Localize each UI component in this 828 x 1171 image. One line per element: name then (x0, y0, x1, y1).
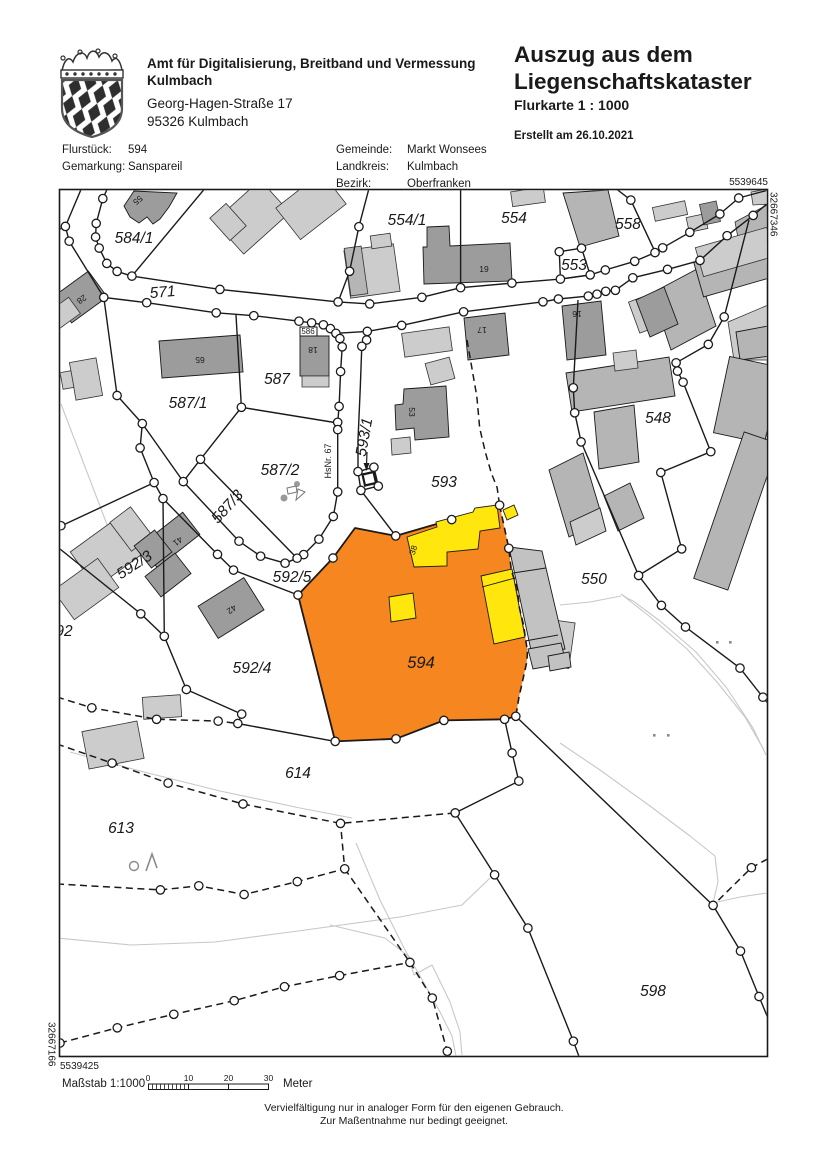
svg-text:19: 19 (479, 264, 489, 274)
svg-text:592/4: 592/4 (233, 660, 272, 677)
svg-text:554/1: 554/1 (388, 212, 427, 229)
svg-text:598: 598 (640, 983, 666, 1000)
svg-text:18: 18 (308, 345, 318, 355)
svg-text:53: 53 (407, 407, 417, 417)
svg-text:593: 593 (431, 474, 457, 491)
svg-text:32667346: 32667346 (768, 192, 779, 237)
svg-text:65: 65 (195, 355, 205, 365)
svg-text:593/1: 593/1 (353, 417, 376, 458)
svg-text:548: 548 (645, 410, 671, 427)
svg-text:30: 30 (264, 1073, 274, 1083)
svg-text:10: 10 (184, 1073, 194, 1083)
svg-text:571: 571 (149, 283, 176, 302)
svg-text:554: 554 (501, 210, 527, 227)
svg-text:592/5: 592/5 (273, 569, 312, 586)
svg-text:550: 550 (581, 571, 607, 588)
svg-text:553: 553 (561, 257, 587, 274)
svg-text:92: 92 (55, 623, 73, 640)
svg-text:17: 17 (477, 325, 487, 335)
svg-text:614: 614 (285, 765, 311, 782)
svg-text:558: 558 (615, 216, 641, 233)
svg-text:HsNr. 67: HsNr. 67 (323, 443, 333, 478)
svg-text:587: 587 (264, 371, 291, 388)
svg-text:5539645: 5539645 (729, 177, 768, 188)
svg-text:587/3: 587/3 (208, 487, 247, 527)
svg-text:5539425: 5539425 (60, 1061, 99, 1072)
svg-text:587/1: 587/1 (169, 395, 208, 412)
svg-text:0: 0 (146, 1073, 151, 1083)
svg-text:587/2: 587/2 (261, 462, 300, 479)
svg-text:32667166: 32667166 (46, 1022, 57, 1067)
svg-text:16: 16 (572, 309, 582, 319)
svg-text:20: 20 (224, 1073, 234, 1083)
svg-text:613: 613 (108, 820, 134, 837)
svg-text:586: 586 (301, 327, 315, 336)
svg-text:594: 594 (407, 654, 435, 672)
svg-text:584/1: 584/1 (115, 230, 154, 247)
